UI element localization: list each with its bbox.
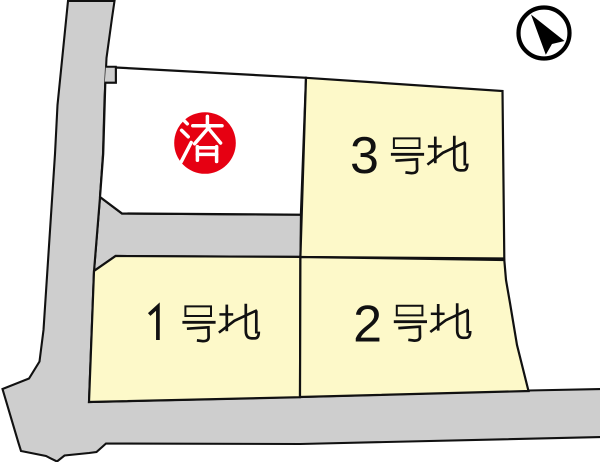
svg-text:2: 2 [353, 296, 382, 354]
svg-text:3: 3 [350, 127, 379, 185]
